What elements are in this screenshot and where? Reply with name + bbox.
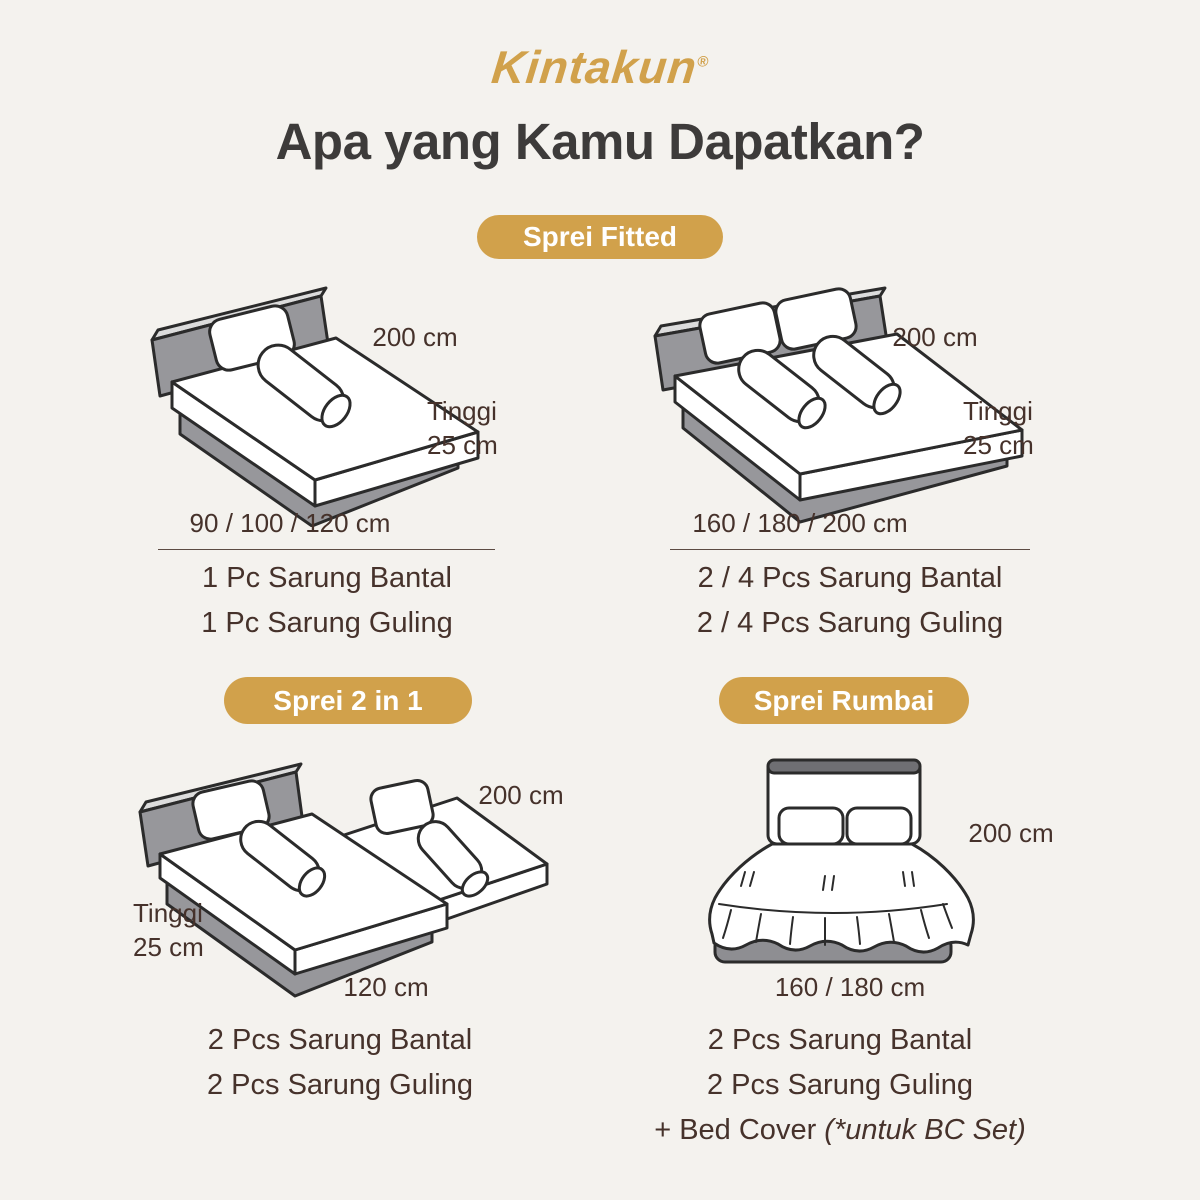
content-item-bed-cover: + Bed Cover (*untuk BC Set)	[645, 1108, 1035, 1153]
2in1-contents: 2 Pcs Sarung Bantal 2 Pcs Sarung Guling	[150, 1018, 530, 1108]
pillow	[847, 808, 911, 844]
content-item: 2 / 4 Pcs Sarung Guling	[660, 601, 1040, 646]
registered-mark: ®	[696, 54, 709, 71]
brand-logo: Kintakun®	[0, 40, 1200, 94]
sizes-label: 90 / 100 / 120 cm	[140, 508, 440, 539]
length-label: 200 cm	[360, 322, 470, 353]
length-label: 200 cm	[880, 322, 990, 353]
brand-name: Kintakun	[489, 41, 699, 93]
content-item: 1 Pc Sarung Guling	[137, 601, 517, 646]
content-item: 2 Pcs Sarung Guling	[150, 1063, 530, 1108]
content-item: 2 / 4 Pcs Sarung Bantal	[660, 556, 1040, 601]
sizes-label: 120 cm	[326, 972, 446, 1003]
length-label: 200 cm	[956, 818, 1066, 849]
content-item: 2 Pcs Sarung Guling	[645, 1063, 1035, 1108]
content-item: 1 Pc Sarung Bantal	[137, 556, 517, 601]
height-label: Tinggi 25 cm	[133, 896, 204, 964]
kintakun-infographic: Kintakun® Apa yang Kamu Dapatkan? Sprei …	[0, 0, 1200, 1200]
rumbai-contents: 2 Pcs Sarung Bantal 2 Pcs Sarung Guling …	[645, 1018, 1035, 1153]
content-item: 2 Pcs Sarung Bantal	[645, 1018, 1035, 1063]
sizes-label: 160 / 180 cm	[770, 972, 930, 1003]
content-item: 2 Pcs Sarung Bantal	[150, 1018, 530, 1063]
divider	[670, 549, 1030, 550]
pillow	[779, 808, 843, 844]
bed-skirt	[710, 844, 974, 952]
height-label: Tinggi 25 cm	[963, 394, 1034, 462]
length-label: 200 cm	[466, 780, 576, 811]
bed-cover-prefix: + Bed Cover	[654, 1114, 824, 1146]
height-label: Tinggi 25 cm	[427, 394, 498, 462]
badge-sprei-fitted: Sprei Fitted	[477, 215, 723, 259]
fitted-double-contents: 2 / 4 Pcs Sarung Bantal 2 / 4 Pcs Sarung…	[660, 556, 1040, 646]
sizes-label: 160 / 180 / 200 cm	[650, 508, 950, 539]
badge-sprei-2in1: Sprei 2 in 1	[224, 677, 472, 724]
badge-sprei-rumbai: Sprei Rumbai	[719, 677, 969, 724]
fitted-single-contents: 1 Pc Sarung Bantal 1 Pc Sarung Guling	[137, 556, 517, 646]
headboard-top-rail	[768, 760, 920, 773]
divider	[158, 549, 495, 550]
bed-illustration-rumbai	[675, 752, 990, 967]
bed-cover-note: (*untuk BC Set)	[824, 1114, 1025, 1146]
page-title: Apa yang Kamu Dapatkan?	[0, 112, 1200, 171]
